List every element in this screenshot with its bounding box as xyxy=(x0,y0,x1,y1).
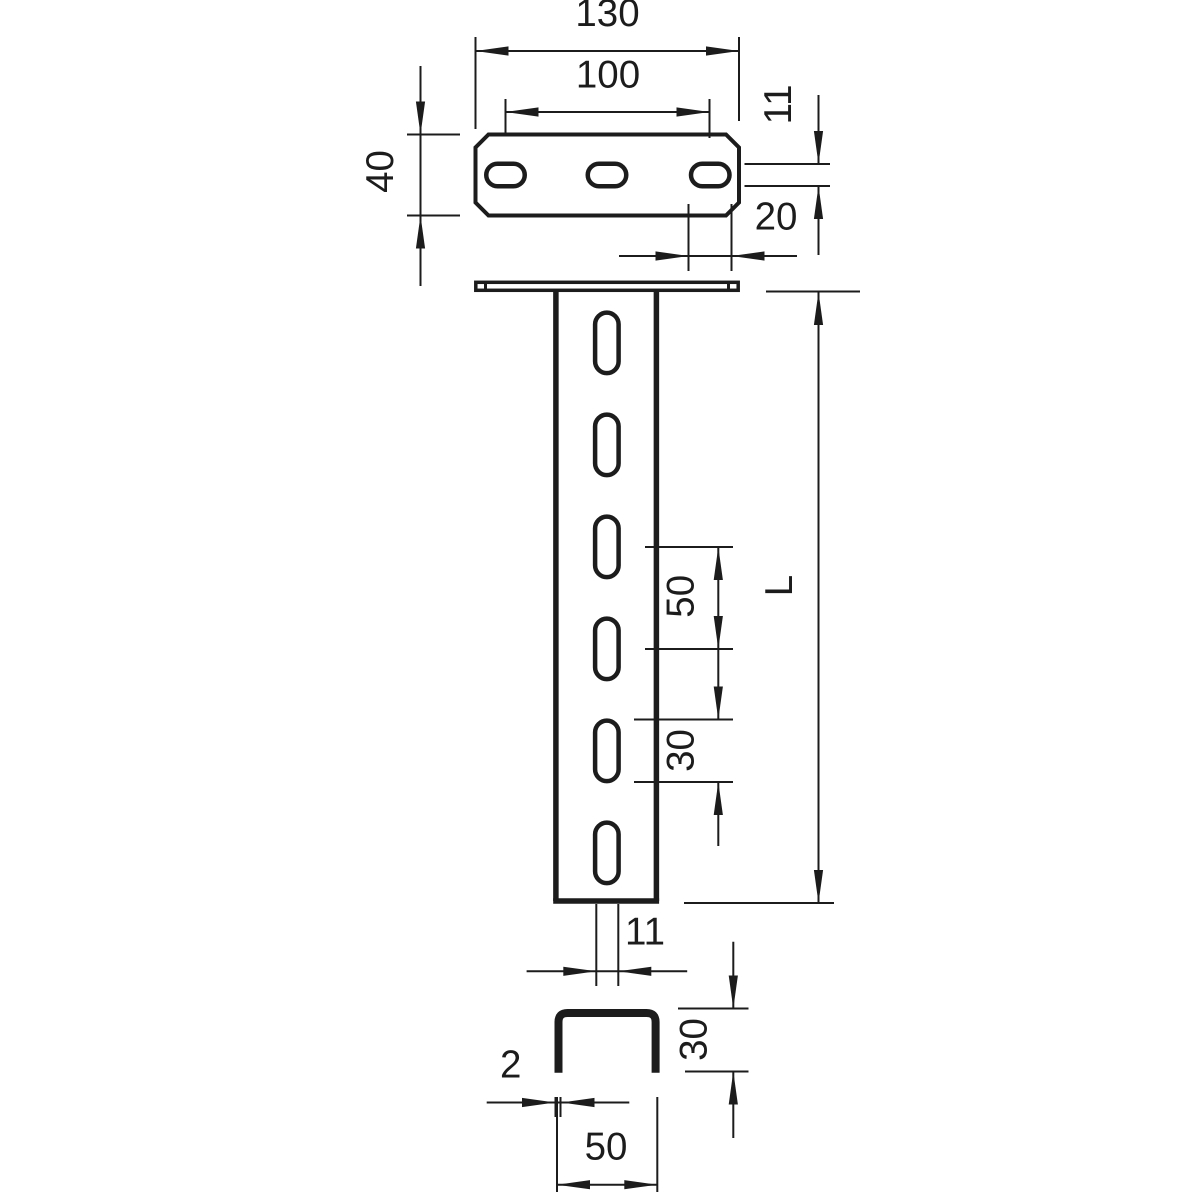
svg-text:2: 2 xyxy=(500,1044,521,1087)
svg-text:20: 20 xyxy=(755,196,798,239)
svg-text:11: 11 xyxy=(757,84,800,124)
svg-text:30: 30 xyxy=(660,729,703,772)
svg-text:50: 50 xyxy=(585,1126,628,1169)
svg-text:130: 130 xyxy=(575,0,639,35)
svg-text:L: L xyxy=(758,575,801,596)
svg-text:40: 40 xyxy=(359,150,402,193)
svg-text:50: 50 xyxy=(660,575,703,618)
svg-text:11: 11 xyxy=(625,911,665,954)
svg-text:30: 30 xyxy=(673,1018,716,1061)
svg-text:100: 100 xyxy=(576,54,640,97)
